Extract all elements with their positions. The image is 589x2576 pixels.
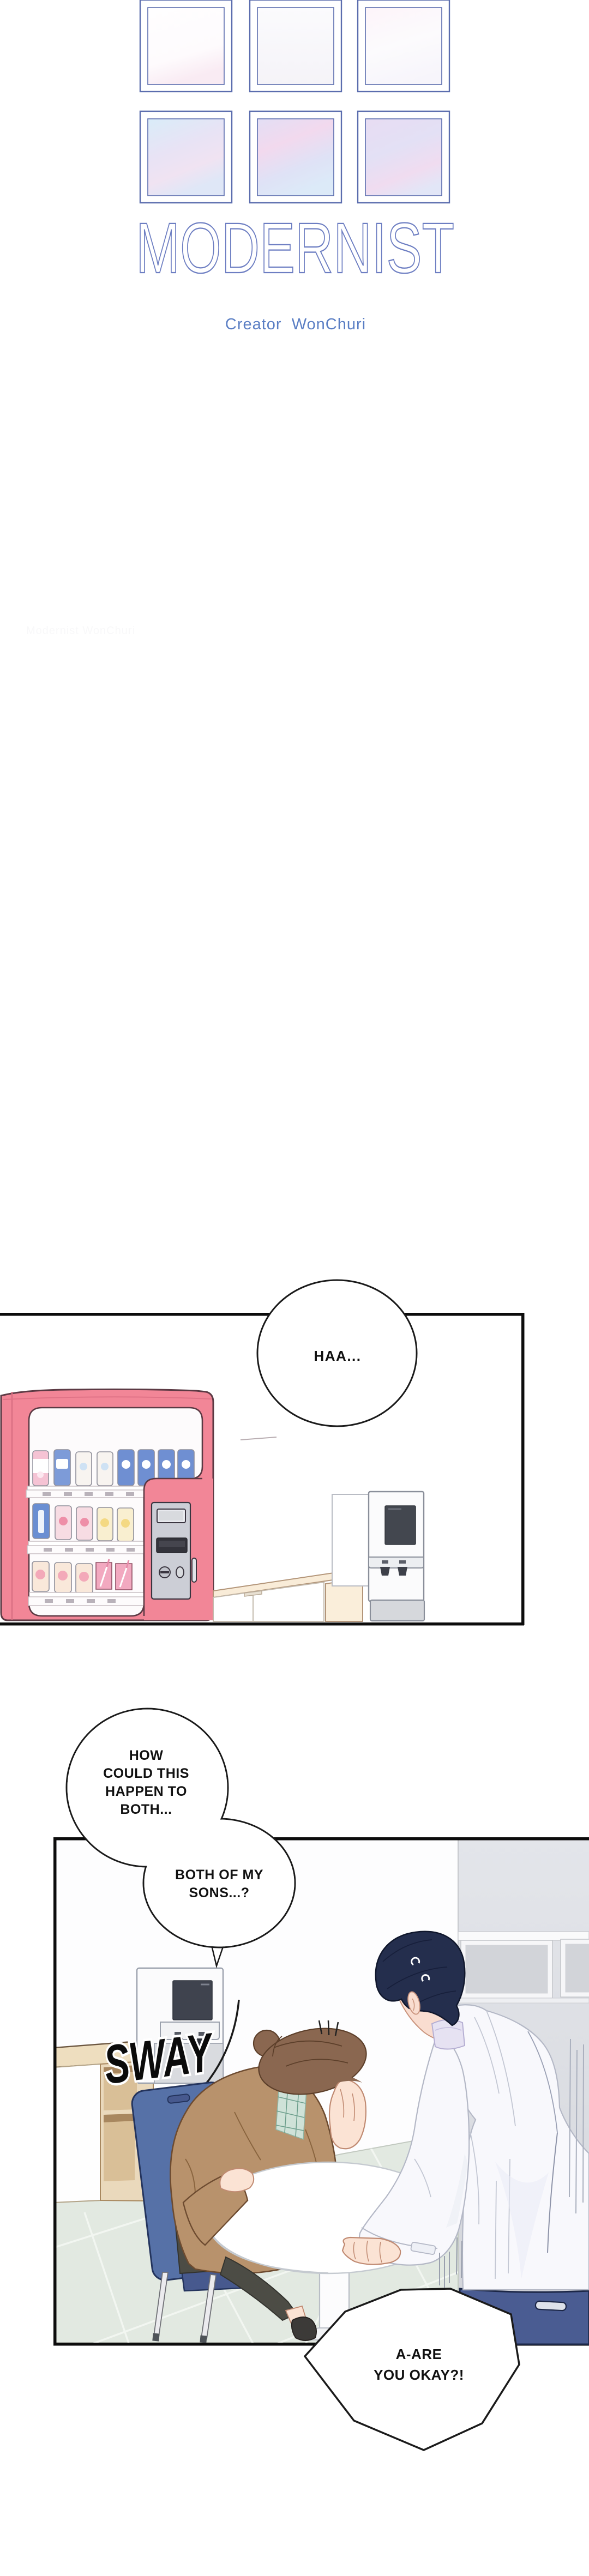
svg-text:SONS...?: SONS...? [189, 1885, 250, 1901]
svg-text:MODERNIST: MODERNIST [136, 208, 454, 288]
svg-text:HAPPEN TO: HAPPEN TO [105, 1784, 187, 1799]
svg-text:A-ARE: A-ARE [396, 2346, 442, 2362]
svg-text:BOTH OF MY: BOTH OF MY [175, 1867, 263, 1883]
svg-text:HOW: HOW [129, 1748, 164, 1763]
svg-text:HAA...: HAA... [314, 1348, 362, 1364]
svg-text:Creator WonChuri: Creator WonChuri [225, 316, 366, 333]
svg-text:Modernist WonChuri: Modernist WonChuri [26, 625, 135, 637]
svg-text:BOTH...: BOTH... [120, 1802, 172, 1817]
svg-text:COULD THIS: COULD THIS [103, 1766, 189, 1781]
svg-text:YOU OKAY?!: YOU OKAY?! [374, 2367, 464, 2383]
